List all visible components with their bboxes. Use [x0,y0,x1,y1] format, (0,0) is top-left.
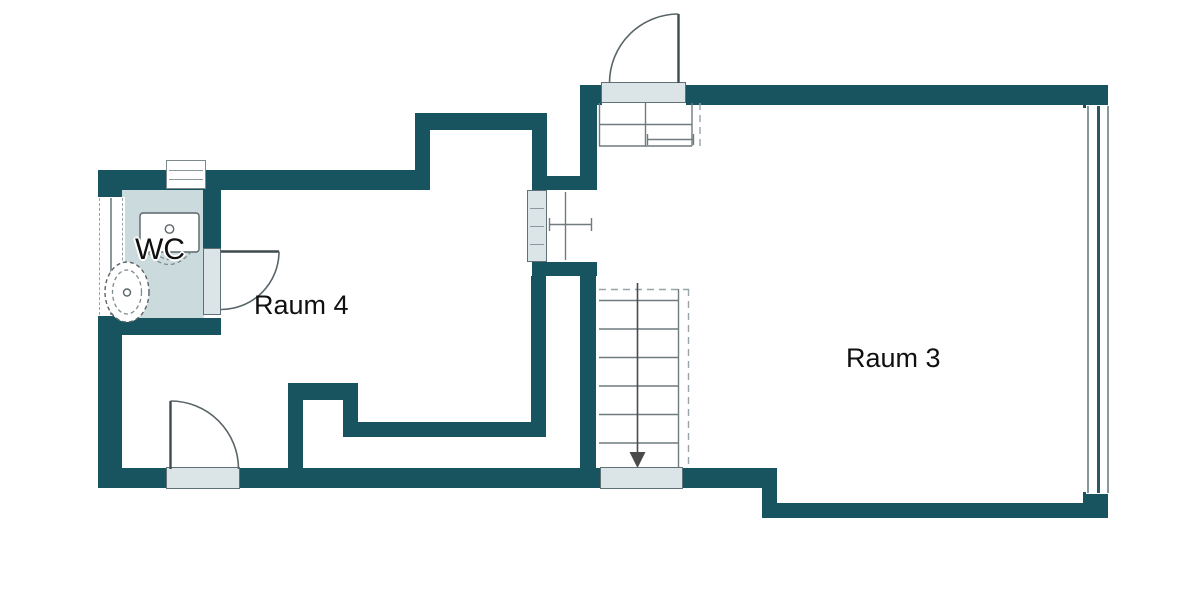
stair-direction-arrow [630,452,646,468]
toilet [105,262,149,322]
raum3-room-label: Raum 3 [846,344,941,374]
entrance-door [610,14,679,83]
bottom-left-door-swing-arc [171,401,239,469]
floor-plan: WC Raum 4 Raum 3 [0,0,1200,600]
sink-faucet [165,225,173,233]
entrance-door-swing-arc [610,14,679,83]
bottom-left-door [171,401,239,469]
wc-room-label: WC [135,233,185,267]
raum4-room-label: Raum 4 [254,291,349,321]
stairs-landing [549,192,592,260]
plan-linework [0,0,1200,600]
stairs-main-flight [599,283,689,468]
toilet-drain [124,289,131,296]
stairs-upper-flight [599,103,700,146]
